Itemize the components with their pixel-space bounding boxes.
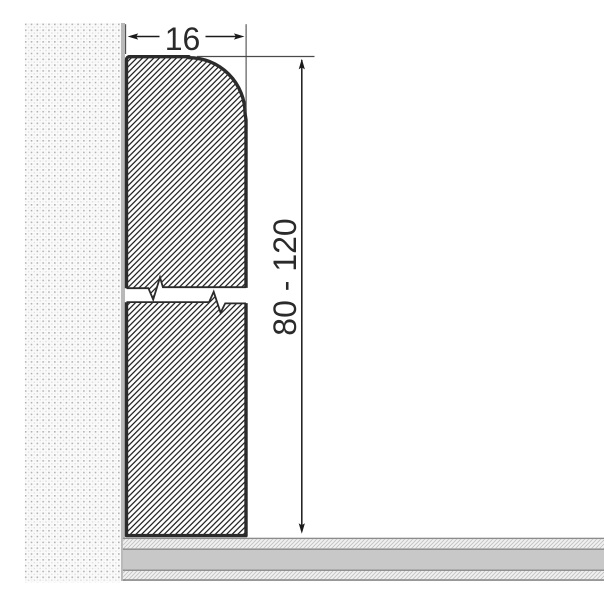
- svg-text:16: 16: [165, 21, 201, 57]
- svg-text:80 - 120: 80 - 120: [267, 218, 303, 335]
